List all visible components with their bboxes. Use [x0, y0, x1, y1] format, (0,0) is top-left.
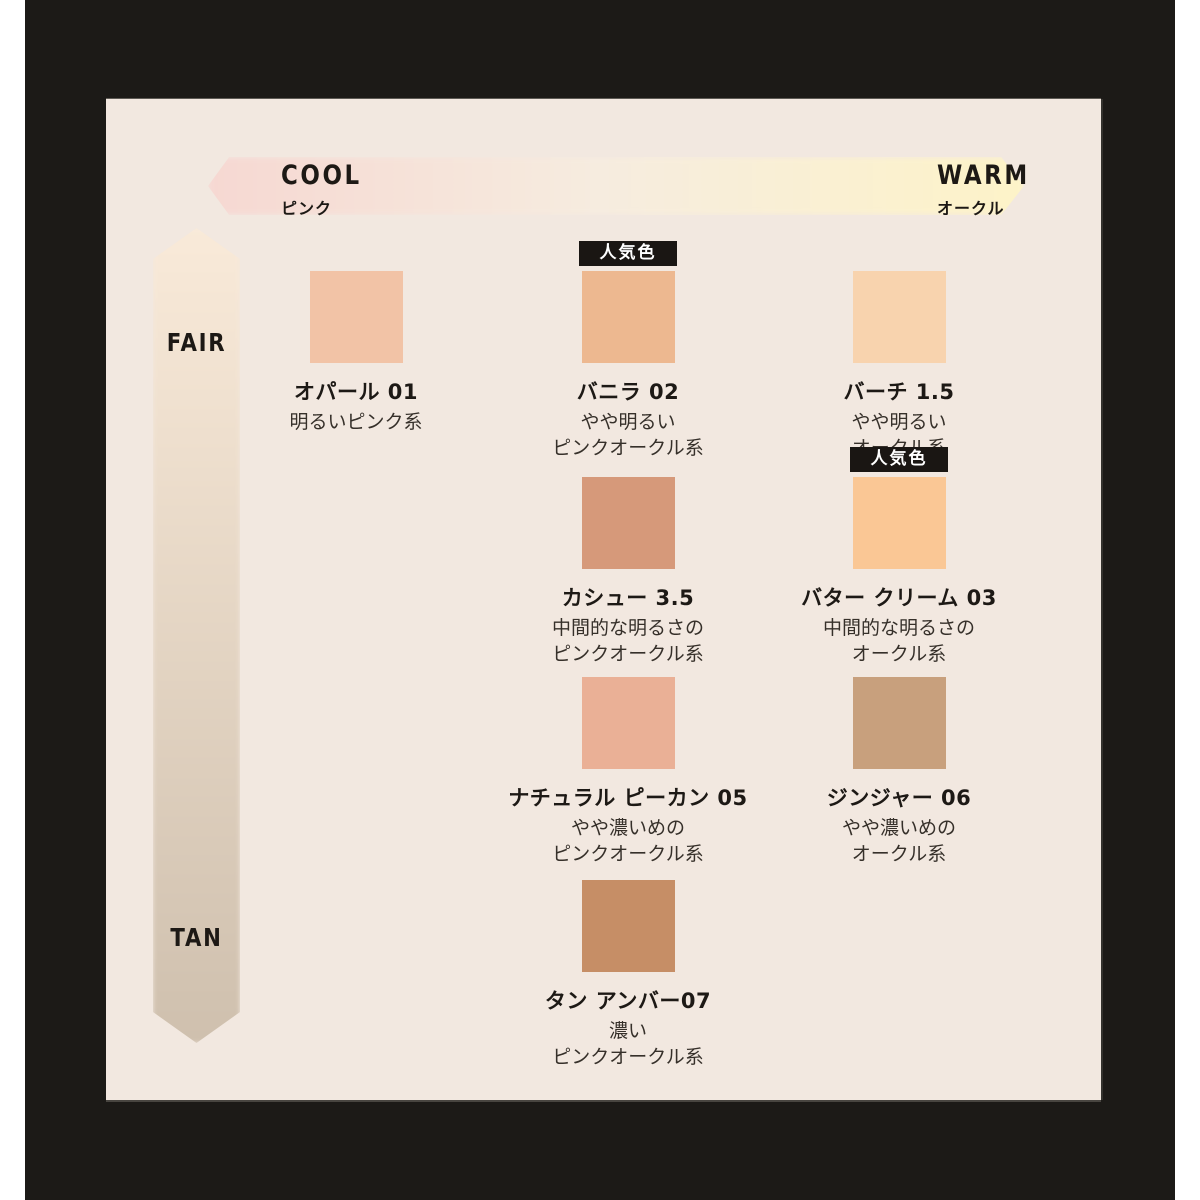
shade-swatch	[853, 677, 946, 769]
cool-axis-label: COOL ピンク	[281, 162, 376, 219]
warm-axis-subtitle: オークル	[937, 195, 1046, 219]
shade-swatch	[853, 271, 946, 363]
shade-desc-line: やや濃いめの	[779, 815, 1019, 841]
shade-cell-tan-amber-07: 人気色 タン アンバー07 濃いピンクオークル系	[508, 850, 748, 1070]
popular-badge: 人気色	[850, 447, 948, 472]
shade-name: オパール 01	[236, 376, 476, 406]
shade-desc-line: やや明るい	[508, 409, 748, 435]
shade-desc-line: 明るいピンク系	[236, 409, 476, 435]
shade-desc: やや濃いめのオークル系	[779, 815, 1019, 867]
warm-axis-label: WARM オークル	[937, 162, 1046, 219]
shade-swatch	[310, 271, 403, 363]
shade-cell-opal-01: 人気色 オパール 01 明るいピンク系	[236, 241, 476, 435]
shade-desc-line: 中間的な明るさの	[779, 615, 1019, 641]
shade-chart-canvas: COOL ピンク WARM オークル FAIR TAN 人気色 オパール 01 …	[0, 0, 1200, 1200]
shade-name: バニラ 02	[508, 376, 748, 406]
shade-desc: 明るいピンク系	[236, 409, 476, 435]
shade-desc-line: オークル系	[779, 841, 1019, 867]
shade-desc-line: やや明るい	[779, 409, 1019, 435]
shade-desc-line: 濃い	[508, 1018, 748, 1044]
warm-axis-title: WARM	[937, 162, 1030, 190]
shade-cell-butter-cream-03: 人気色 バター クリーム 03 中間的な明るさのオークル系	[779, 447, 1019, 667]
shade-swatch	[582, 271, 675, 363]
cool-axis-subtitle: ピンク	[281, 195, 376, 219]
shade-name: カシュー 3.5	[508, 582, 748, 612]
tan-axis-label: TAN	[160, 923, 234, 952]
shade-cell-birch-1.5: 人気色 バーチ 1.5 やや明るいオークル系	[779, 241, 1019, 461]
shade-swatch	[853, 477, 946, 569]
shade-swatch	[582, 677, 675, 769]
shade-cell-cashew-3.5: 人気色 カシュー 3.5 中間的な明るさのピンクオークル系	[508, 447, 748, 667]
shade-desc-line: ピンクオークル系	[508, 1044, 748, 1070]
shade-name: タン アンバー07	[508, 985, 748, 1015]
shade-swatch	[582, 477, 675, 569]
shade-name: ジンジャー 06	[779, 782, 1019, 812]
cool-axis-title: COOL	[281, 162, 362, 190]
shade-name: ナチュラル ピーカン 05	[508, 782, 748, 812]
shade-name: バーチ 1.5	[779, 376, 1019, 406]
chart-panel: COOL ピンク WARM オークル FAIR TAN 人気色 オパール 01 …	[106, 99, 1101, 1100]
shade-cell-natural-pecan-05: 人気色 ナチュラル ピーカン 05 やや濃いめのピンクオークル系	[508, 647, 748, 867]
shade-swatch	[582, 880, 675, 972]
popular-badge: 人気色	[579, 241, 677, 266]
shade-desc-line: やや濃いめの	[508, 815, 748, 841]
shade-desc: 濃いピンクオークル系	[508, 1018, 748, 1070]
shade-cell-vanilla-02: 人気色 バニラ 02 やや明るいピンクオークル系	[508, 241, 748, 461]
shade-name: バター クリーム 03	[779, 582, 1019, 612]
shade-desc-line: 中間的な明るさの	[508, 615, 748, 641]
fair-axis-label: FAIR	[160, 328, 234, 357]
shade-cell-ginger-06: 人気色 ジンジャー 06 やや濃いめのオークル系	[779, 647, 1019, 867]
